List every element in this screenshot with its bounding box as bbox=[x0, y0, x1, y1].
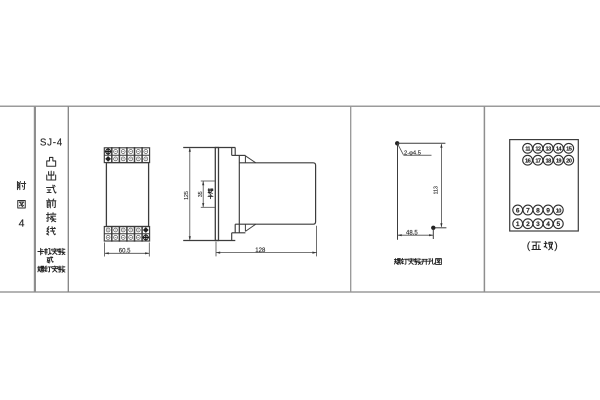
svg-text:125: 125 bbox=[184, 191, 190, 200]
svg-text:7: 7 bbox=[526, 207, 530, 214]
svg-text:8: 8 bbox=[536, 207, 540, 214]
svg-text:60.5: 60.5 bbox=[119, 249, 131, 255]
svg-text:18: 18 bbox=[546, 159, 552, 165]
svg-text:9: 9 bbox=[546, 207, 550, 214]
svg-text:3: 3 bbox=[536, 221, 540, 228]
svg-text:35: 35 bbox=[198, 191, 204, 197]
svg-text:113: 113 bbox=[434, 186, 440, 194]
svg-text:(: ( bbox=[527, 240, 531, 252]
svg-text:): ) bbox=[554, 240, 558, 252]
svg-text:SJ-4: SJ-4 bbox=[40, 138, 63, 149]
svg-text:2: 2 bbox=[526, 221, 530, 228]
svg-text:1: 1 bbox=[516, 221, 520, 228]
svg-text:16: 16 bbox=[525, 159, 531, 165]
svg-text:13: 13 bbox=[546, 147, 552, 153]
svg-text:5: 5 bbox=[556, 221, 560, 228]
svg-text:10: 10 bbox=[556, 208, 562, 214]
svg-text:6: 6 bbox=[516, 207, 520, 214]
svg-text:17: 17 bbox=[535, 159, 541, 165]
svg-text:20: 20 bbox=[566, 159, 572, 165]
svg-text:4: 4 bbox=[546, 221, 550, 228]
svg-text:15: 15 bbox=[566, 147, 572, 153]
svg-text:2-φ4.5: 2-φ4.5 bbox=[404, 150, 421, 156]
svg-text:12: 12 bbox=[535, 147, 541, 153]
svg-text:11: 11 bbox=[525, 147, 530, 153]
svg-text:4: 4 bbox=[19, 218, 25, 230]
svg-text:48.5: 48.5 bbox=[406, 230, 418, 236]
svg-text:128: 128 bbox=[255, 248, 266, 254]
svg-text:19: 19 bbox=[556, 159, 562, 165]
